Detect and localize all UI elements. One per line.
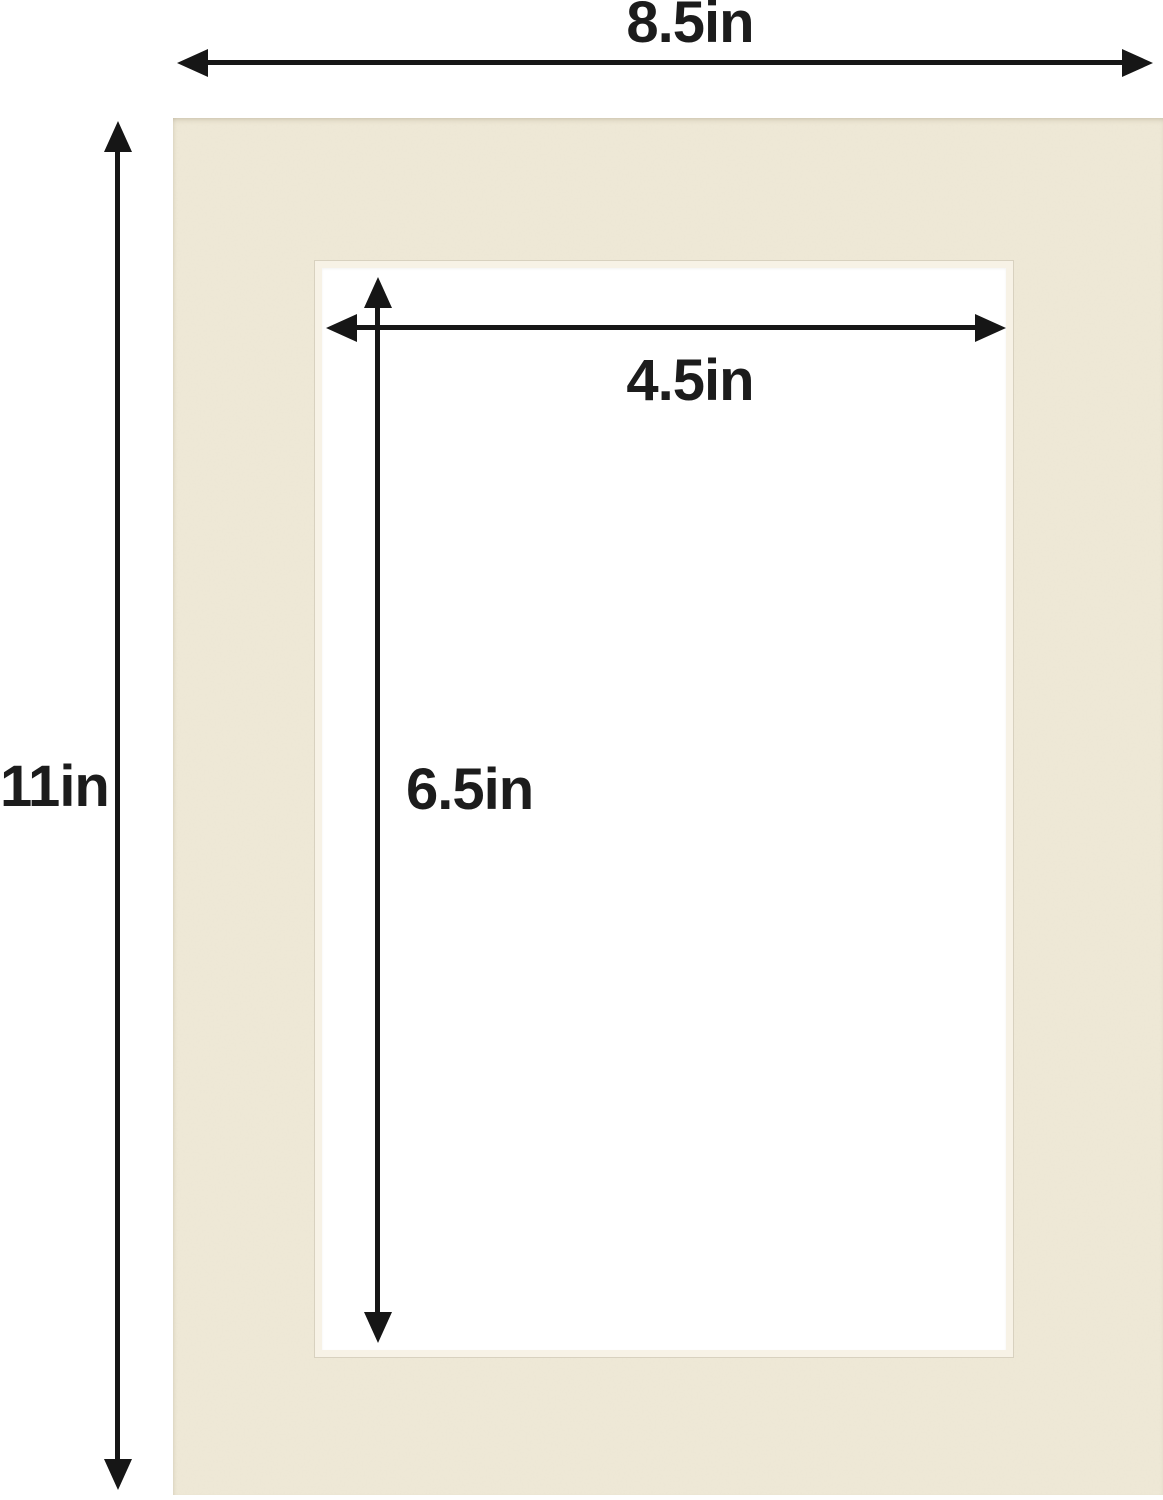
arrow-shaft (201, 60, 1129, 65)
arrow-down-head-icon (104, 1459, 132, 1490)
mat-dimension-diagram: 8.5in 11in 4.5in 6.5in (0, 0, 1163, 1500)
arrow-shaft (375, 301, 380, 1319)
arrow-down-head-icon (364, 1312, 392, 1343)
opening-width-arrow (326, 314, 1006, 341)
arrow-shaft (115, 145, 120, 1466)
arrow-right-head-icon (975, 314, 1006, 342)
outer-width-label: 8.5in (560, 0, 820, 52)
opening-height-arrow (364, 277, 391, 1343)
arrow-shaft (350, 325, 982, 330)
outer-height-label: 11in (0, 758, 108, 816)
arrow-right-head-icon (1122, 49, 1153, 77)
opening-height-label: 6.5in (406, 761, 533, 819)
opening-width-label: 4.5in (560, 352, 820, 410)
